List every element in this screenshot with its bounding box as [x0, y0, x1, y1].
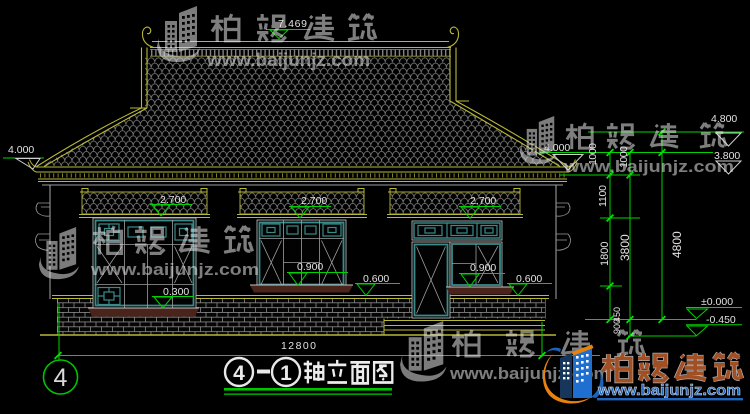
svg-text:www.baijunjz.com: www.baijunjz.com — [90, 260, 259, 279]
svg-text:2.700: 2.700 — [470, 195, 496, 207]
svg-text:www.baijunjz.com: www.baijunjz.com — [206, 50, 370, 70]
svg-text:4.800: 4.800 — [711, 113, 737, 125]
svg-text:4: 4 — [54, 364, 68, 392]
svg-text:±0.000: ±0.000 — [701, 296, 733, 308]
svg-text:1800: 1800 — [599, 242, 611, 266]
svg-text:www.baijunjz.com: www.baijunjz.com — [597, 382, 741, 399]
svg-text:www.baijunjz.com: www.baijunjz.com — [563, 157, 734, 176]
svg-text:-0.450: -0.450 — [706, 314, 736, 326]
svg-text:0.900: 0.900 — [470, 262, 496, 274]
svg-text:12800: 12800 — [281, 340, 316, 352]
svg-text:1100: 1100 — [597, 185, 609, 207]
svg-text:1: 1 — [280, 362, 292, 385]
svg-text:0.300: 0.300 — [163, 286, 189, 298]
svg-text:4: 4 — [233, 362, 245, 385]
svg-text:0.900: 0.900 — [297, 261, 323, 273]
svg-text:4800: 4800 — [670, 231, 684, 258]
svg-text:3800: 3800 — [618, 234, 632, 261]
svg-text:2.700: 2.700 — [160, 194, 186, 206]
svg-text:2.700: 2.700 — [301, 195, 327, 207]
svg-text:4.000: 4.000 — [8, 144, 34, 156]
svg-text:0.600: 0.600 — [516, 273, 542, 285]
svg-text:0.600: 0.600 — [363, 273, 389, 285]
